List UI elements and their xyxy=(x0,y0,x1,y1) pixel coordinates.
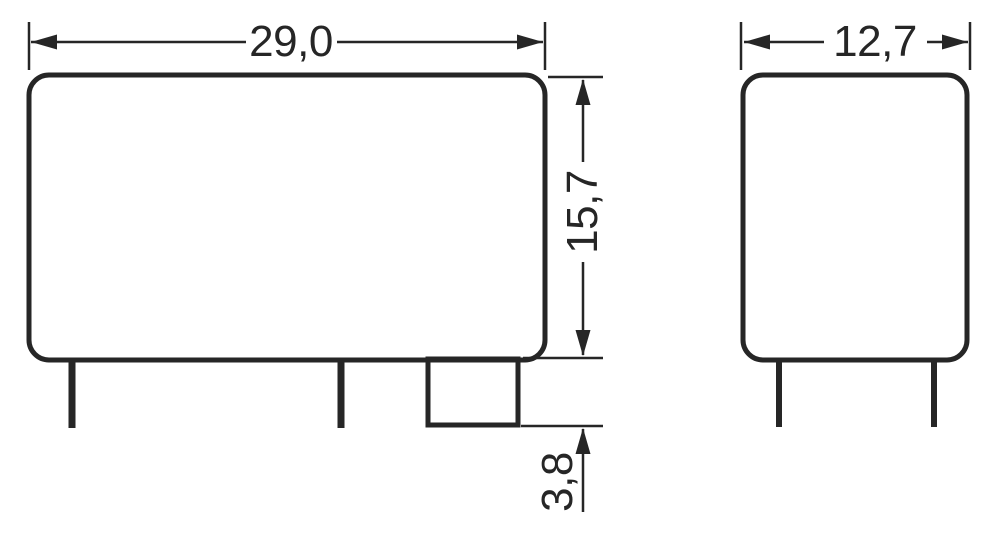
dimension-pin-length: 3,8 xyxy=(521,426,603,512)
side-width-label: 12,7 xyxy=(833,17,917,66)
arrowhead-up-icon xyxy=(576,79,591,105)
arrowhead-down-icon xyxy=(576,330,591,356)
relay-outline-drawing: 29,0 15,7 3,8 xyxy=(0,0,1000,539)
side-view xyxy=(743,75,967,427)
front-width-label: 29,0 xyxy=(249,17,333,66)
dimension-side-width: 12,7 xyxy=(741,17,970,70)
front-view xyxy=(29,75,545,428)
front-body-outline xyxy=(29,75,545,360)
dimension-drawing-canvas: 29,0 15,7 3,8 xyxy=(0,0,1000,539)
arrowhead-left-icon xyxy=(744,35,770,50)
arrowhead-right-icon xyxy=(942,35,968,50)
side-body-outline xyxy=(743,75,967,360)
arrowhead-left-icon xyxy=(31,35,57,50)
pin-length-label: 3,8 xyxy=(533,452,582,512)
arrowhead-up-icon xyxy=(576,428,591,454)
dimension-front-height: 15,7 xyxy=(523,77,607,358)
front-height-label: 15,7 xyxy=(558,170,607,254)
front-pin-wide xyxy=(428,359,518,425)
arrowhead-right-icon xyxy=(517,35,543,50)
dimension-front-width: 29,0 xyxy=(29,17,545,70)
